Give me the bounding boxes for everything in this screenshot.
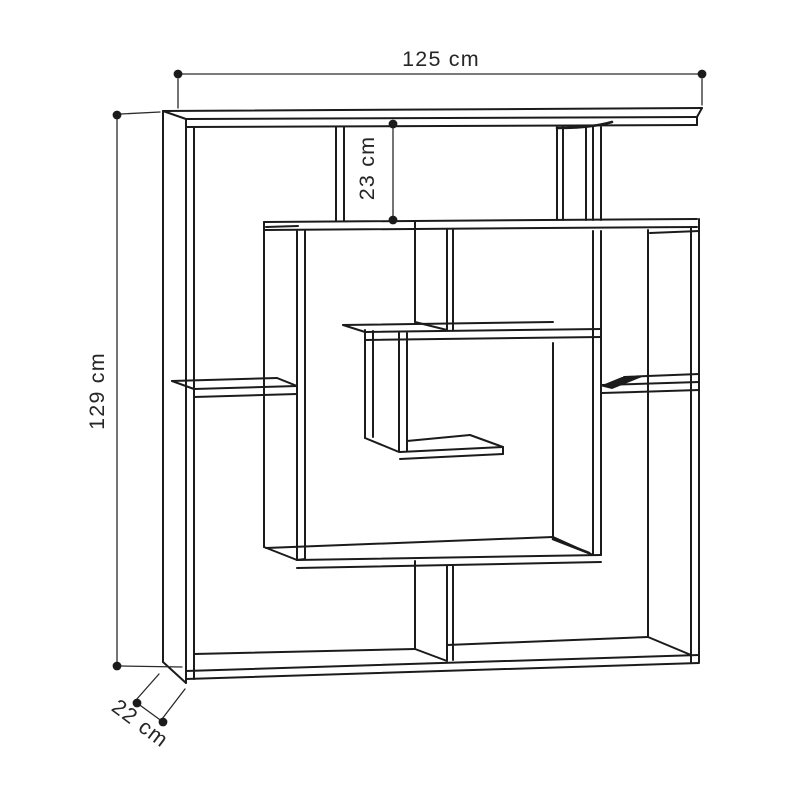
dim-endpoint-dot [174, 70, 183, 79]
dimension-depth: 22 cm [107, 674, 185, 752]
inner-box-top-shelf [343, 322, 601, 340]
bookshelf-outline [163, 108, 702, 683]
lower-middle-divider [415, 561, 453, 661]
left-middle-shelf [172, 378, 297, 397]
top-shelf [163, 108, 702, 128]
dim-endpoint-dot [389, 216, 398, 225]
width-dimension-label: 125 cm [402, 47, 480, 71]
maze-right-panel [553, 231, 601, 555]
dimension-top-gap: 23 cm [355, 120, 397, 225]
dimension-width: 125 cm [174, 47, 707, 108]
height-dimension-label: 129 cm [85, 352, 109, 430]
dim-endpoint-dot [698, 70, 707, 79]
dim-endpoint-dot [389, 120, 398, 129]
second-shelf [264, 219, 699, 233]
upper-middle-divider [415, 221, 453, 330]
bottom-shelf [186, 637, 699, 679]
right-side-panel [648, 219, 699, 662]
top-gap-dimension-label: 23 cm [355, 136, 379, 201]
dim-endpoint-dot [113, 662, 122, 671]
right-middle-shelf [600, 374, 699, 393]
left-side-panel [163, 111, 194, 683]
diagram-canvas: 125 cm 129 cm 23 cm 22 cm [0, 0, 800, 800]
maze-bottom-shelf [266, 537, 601, 568]
dimension-height: 129 cm [85, 111, 182, 671]
inner-ledge-shelf [400, 435, 503, 459]
dim-endpoint-dot [113, 111, 122, 120]
bookshelf-technical-drawing: 125 cm 129 cm 23 cm 22 cm [0, 0, 800, 800]
inner-box-left-panel [365, 330, 407, 452]
